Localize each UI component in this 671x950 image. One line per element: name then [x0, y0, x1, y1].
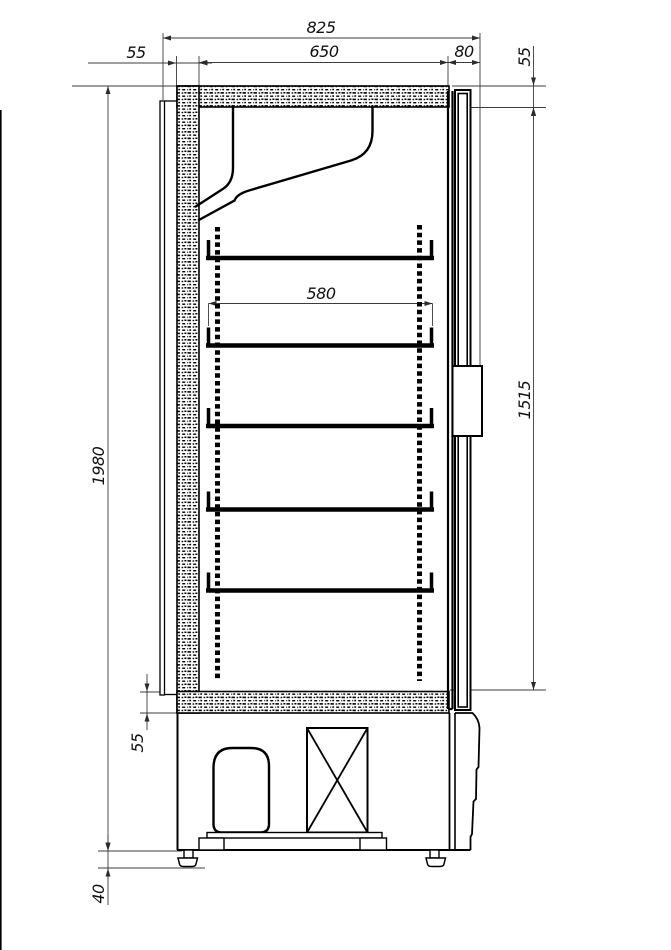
leveling-foot-left [178, 850, 198, 867]
shelf [206, 240, 434, 260]
evaporator-duct [195, 108, 373, 221]
shelf [206, 492, 434, 512]
dim-label-825: 825 [306, 18, 335, 37]
dim-label-55-right: 55 [515, 47, 534, 67]
shelf [206, 573, 434, 593]
dim-label-80: 80 [454, 42, 474, 61]
shelf [206, 328, 434, 348]
top-insulation-panel [177, 86, 449, 107]
door-handle [453, 366, 483, 436]
dim-label-650: 650 [309, 42, 338, 61]
compressor [214, 748, 270, 833]
dim-label-1980: 1980 [89, 446, 108, 485]
bottom-insulation-panel [177, 692, 449, 714]
drawing-sheet: 825 650 80 55 55 580 1980 1515 55 40 [0, 0, 671, 950]
sheet-edge-line [0, 110, 2, 950]
shelf [206, 408, 434, 428]
condenser-unit [307, 728, 368, 833]
dim-label-1515: 1515 [515, 380, 534, 419]
lower-front-panel [455, 713, 480, 850]
dim-label-55-bottom: 55 [128, 733, 147, 753]
dim-label-55-left: 55 [126, 43, 146, 62]
cabinet-section-drawing: 825 650 80 55 55 580 1980 1515 55 40 [0, 0, 671, 950]
dim-label-580: 580 [306, 284, 335, 303]
dim-label-40: 40 [89, 884, 108, 904]
leveling-foot-right [426, 850, 446, 867]
base-plate [199, 833, 387, 851]
back-outer-panel [160, 101, 177, 695]
back-insulation-wall [177, 86, 199, 713]
